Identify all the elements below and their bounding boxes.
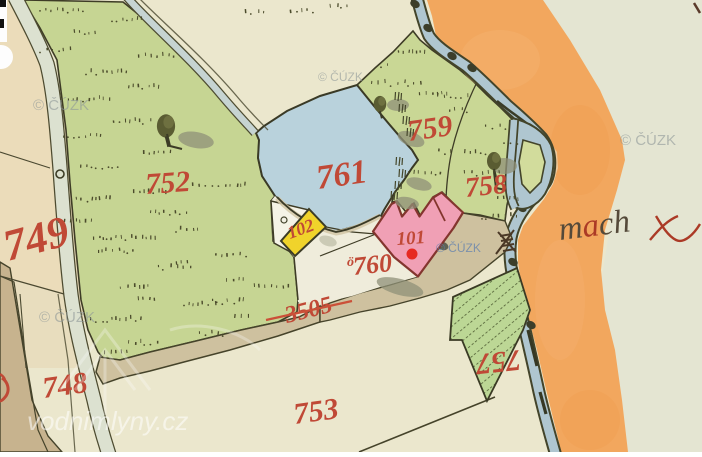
svg-text:vodnimlyny.cz: vodnimlyny.cz bbox=[27, 406, 188, 436]
svg-text:© ČÚZK: © ČÚZK bbox=[33, 97, 89, 114]
svg-text:© ČÚZK: © ČÚZK bbox=[436, 240, 481, 255]
svg-text:© ČÚZK: © ČÚZK bbox=[39, 309, 95, 326]
svg-text:752: 752 bbox=[144, 165, 191, 201]
svg-text:101: 101 bbox=[396, 227, 426, 250]
svg-text:761: 761 bbox=[314, 153, 370, 197]
svg-text:© ČÚZK: © ČÚZK bbox=[318, 69, 363, 84]
svg-text:ö: ö bbox=[347, 255, 354, 270]
svg-text:© ČÚZK: © ČÚZK bbox=[620, 132, 676, 149]
svg-text:760: 760 bbox=[352, 248, 394, 281]
svg-text:758: 758 bbox=[463, 169, 508, 204]
svg-text:757: 757 bbox=[474, 343, 523, 381]
svg-text:753: 753 bbox=[291, 392, 340, 431]
svg-text:759: 759 bbox=[405, 109, 454, 148]
